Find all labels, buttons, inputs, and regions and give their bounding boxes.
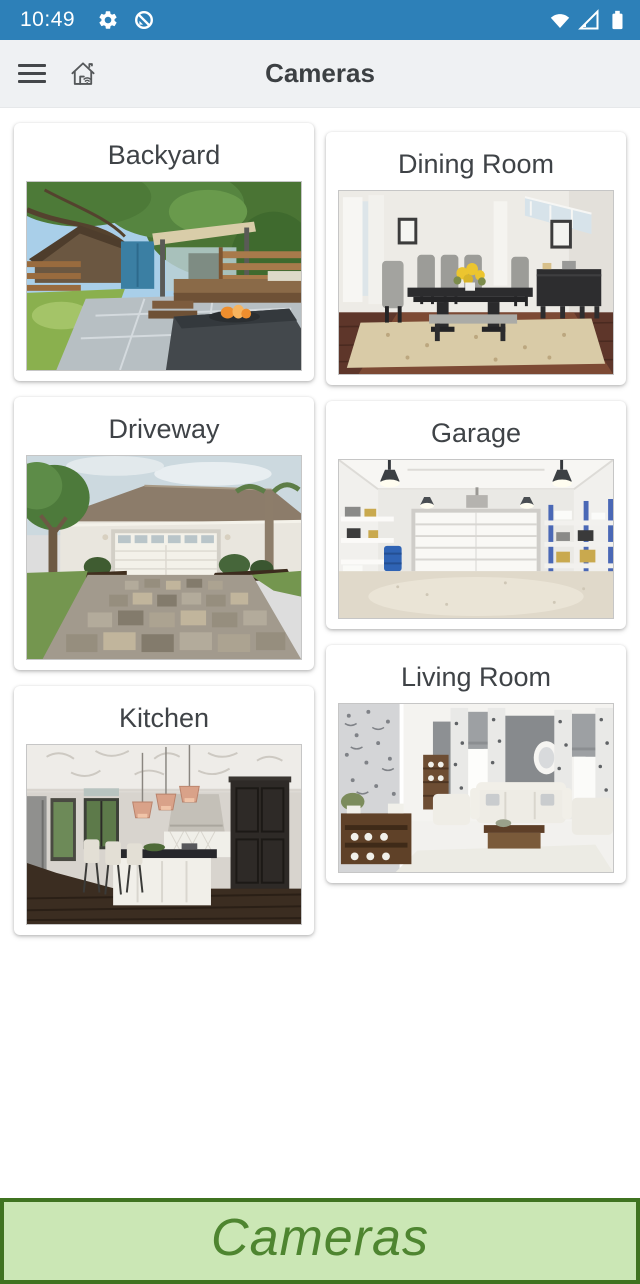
- camera-card-living-room[interactable]: Living Room: [326, 645, 626, 883]
- camera-card-kitchen[interactable]: Kitchen: [14, 686, 314, 935]
- settings-gear-icon: [97, 9, 119, 31]
- footer-banner-label: Cameras: [211, 1208, 429, 1274]
- grid-column-right: Dining Room: [326, 132, 626, 935]
- kitchen-camera-snapshot: [26, 744, 302, 925]
- clock-text: 10:49: [20, 8, 75, 32]
- camera-card-backyard[interactable]: Backyard: [14, 123, 314, 381]
- data-saver-icon: [133, 9, 155, 31]
- camera-card-garage[interactable]: Garage: [326, 401, 626, 629]
- smart-home-icon[interactable]: [66, 57, 100, 91]
- camera-title: Dining Room: [338, 138, 614, 190]
- cell-signal-icon: [577, 8, 601, 32]
- camera-title: Backyard: [26, 129, 302, 181]
- driveway-camera-snapshot: [26, 455, 302, 660]
- backyard-camera-snapshot: [26, 181, 302, 371]
- camera-title: Driveway: [26, 403, 302, 455]
- garage-camera-snapshot: [338, 459, 614, 619]
- wifi-icon: [548, 8, 572, 32]
- app-bar: Cameras: [0, 40, 640, 108]
- camera-card-dining-room[interactable]: Dining Room: [326, 132, 626, 385]
- status-bar: 10:49: [0, 0, 640, 40]
- grid-column-left: Backyard: [14, 123, 314, 935]
- living-room-camera-snapshot: [338, 703, 614, 873]
- camera-title: Kitchen: [26, 692, 302, 744]
- camera-title: Garage: [338, 407, 614, 459]
- camera-title: Living Room: [338, 651, 614, 703]
- battery-icon: [606, 7, 628, 33]
- footer-banner: Cameras: [0, 1198, 640, 1284]
- camera-grid: Backyard: [0, 108, 640, 935]
- dining-room-camera-snapshot: [338, 190, 614, 375]
- menu-icon[interactable]: [18, 64, 46, 83]
- camera-card-driveway[interactable]: Driveway: [14, 397, 314, 670]
